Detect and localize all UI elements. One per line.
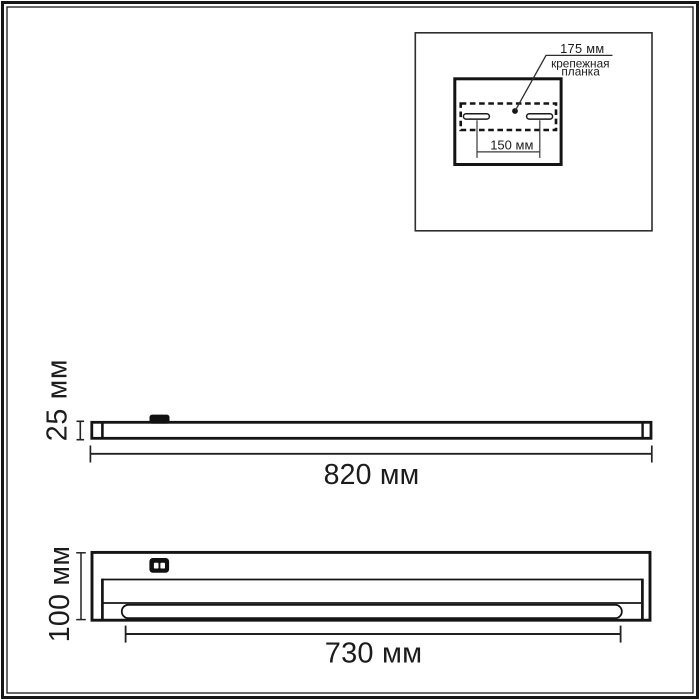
svg-text:25 мм: 25 мм: [41, 359, 73, 442]
svg-text:175 мм: 175 мм: [560, 41, 604, 56]
svg-text:730 мм: 730 мм: [325, 638, 423, 670]
svg-text:820 мм: 820 мм: [324, 459, 420, 491]
svg-text:100 мм: 100 мм: [44, 546, 76, 642]
svg-text:планка: планка: [561, 64, 600, 78]
svg-text:150 мм: 150 мм: [490, 138, 533, 153]
